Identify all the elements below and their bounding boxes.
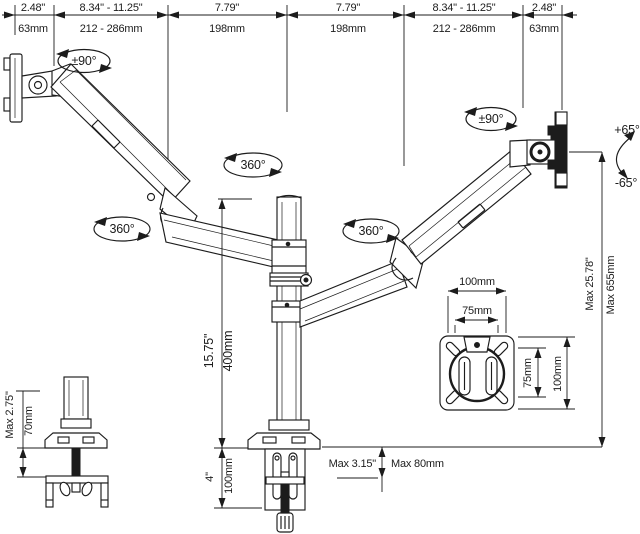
tilt-up-label: +65° bbox=[614, 123, 640, 137]
clamp-depth-mm-label: 100mm bbox=[223, 458, 235, 494]
desk-clamp-max-mm-label: Max 80mm bbox=[391, 458, 444, 470]
top-dim-4-mm: 198mm bbox=[330, 23, 366, 35]
top-dim-6-mm: 63mm bbox=[529, 23, 559, 35]
grommet-thickness-dimension: Max 2.75" 70mm bbox=[4, 391, 46, 477]
top-dim-5-inch: 8.34" - 11.25" bbox=[433, 2, 496, 14]
desk-thickness-dimension: Max 3.15" Max 80mm bbox=[322, 447, 602, 492]
vesa-height-outer-label: 100mm bbox=[552, 356, 564, 392]
pole-height-inch-label: 15.75" bbox=[202, 334, 216, 369]
top-dim-5-mm: 212 - 286mm bbox=[433, 23, 496, 35]
vesa-plate-detail: 100mm 75mm 75mm 100mm bbox=[440, 276, 575, 410]
grommet-max-mm-label: 70mm bbox=[23, 406, 35, 436]
tilt-range-label: +65° -65° bbox=[614, 123, 640, 190]
desk-clamp-max-inch-label: Max 3.15" bbox=[329, 458, 377, 470]
grommet-max-inch-label: Max 2.75" bbox=[4, 391, 16, 439]
svg-text:360°: 360° bbox=[358, 224, 383, 238]
pole-rotation-label: 360° bbox=[224, 153, 282, 177]
top-dim-3-inch: 7.79" bbox=[215, 2, 240, 14]
vesa-height-inner-label: 75mm bbox=[522, 358, 534, 388]
clamp-depth-dimension: 4" 100mm bbox=[204, 448, 262, 508]
left-gas-spring-arm bbox=[51, 64, 190, 203]
max-height-dimension: Max 25.78" Max 655mm bbox=[569, 152, 617, 447]
vesa-width-outer-label: 100mm bbox=[459, 276, 495, 288]
right-forearm bbox=[300, 261, 407, 327]
left-forearm bbox=[160, 213, 278, 268]
top-dim-1-mm: 63mm bbox=[18, 23, 48, 35]
svg-text:±90°: ±90° bbox=[72, 54, 97, 68]
top-dim-2-mm: 212 - 286mm bbox=[80, 23, 143, 35]
tilt-down-label: -65° bbox=[615, 176, 637, 190]
top-dim-3-mm: 198mm bbox=[209, 23, 245, 35]
svg-text:±90°: ±90° bbox=[479, 112, 504, 126]
vesa-width-inner-label: 75mm bbox=[462, 305, 492, 317]
svg-text:360°: 360° bbox=[240, 158, 265, 172]
top-dim-6-inch: 2.48" bbox=[532, 2, 557, 14]
max-height-mm-label: Max 655mm bbox=[605, 256, 617, 315]
right-arm-rotation-label: 360° bbox=[343, 219, 399, 243]
desk-clamp bbox=[248, 433, 320, 532]
left-arm-rotation-label: 360° bbox=[94, 217, 150, 241]
svg-text:360°: 360° bbox=[109, 222, 134, 236]
top-dim-4-inch: 7.79" bbox=[336, 2, 361, 14]
clamp-depth-inch-label: 4" bbox=[204, 472, 216, 482]
right-swivel-label: ±90° bbox=[464, 107, 518, 131]
grommet-clamp-detail bbox=[45, 377, 108, 507]
top-dim-1-inch: 2.48" bbox=[21, 2, 46, 14]
diagram-canvas: 2.48" 8.34" - 11.25" 7.79" 7.79" 8.34" -… bbox=[0, 0, 640, 534]
clamp-screw bbox=[281, 484, 289, 513]
max-height-inch-label: Max 25.78" bbox=[584, 257, 596, 311]
pole-height-mm-label: 400mm bbox=[221, 331, 235, 372]
top-dim-2-inch: 8.34" - 11.25" bbox=[80, 2, 143, 14]
monitor-arm-dimension-diagram: 2.48" 8.34" - 11.25" 7.79" 7.79" 8.34" -… bbox=[0, 0, 640, 534]
